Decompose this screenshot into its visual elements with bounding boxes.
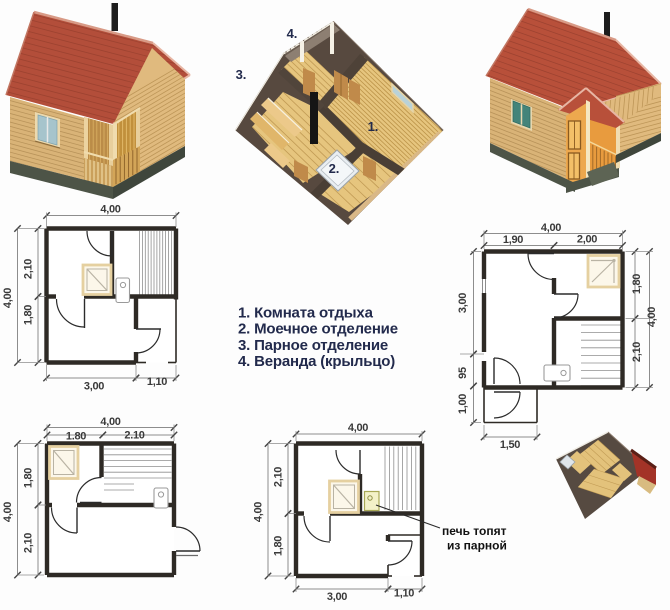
svg-text:2,10: 2,10 <box>23 259 35 279</box>
svg-text:1.80: 1.80 <box>66 431 86 443</box>
svg-text:4,00: 4,00 <box>646 307 658 327</box>
svg-text:2,10: 2,10 <box>273 467 285 487</box>
svg-text:1,10: 1,10 <box>394 588 414 600</box>
svg-text:4,00: 4,00 <box>2 288 14 308</box>
svg-text:95: 95 <box>457 367 469 379</box>
svg-text:1,90: 1,90 <box>503 234 523 246</box>
svg-text:4,00: 4,00 <box>253 502 265 522</box>
svg-text:печь топят: печь топят <box>442 524 507 538</box>
svg-text:2,10: 2,10 <box>631 342 643 362</box>
svg-text:4,00: 4,00 <box>100 204 120 216</box>
svg-text:1.: 1. <box>368 119 379 134</box>
svg-text:4. Веранда (крыльцо): 4. Веранда (крыльцо) <box>238 353 395 370</box>
svg-text:1,10: 1,10 <box>147 376 167 388</box>
svg-text:4,00: 4,00 <box>2 502 14 522</box>
svg-text:1,80: 1,80 <box>23 468 35 488</box>
svg-text:3,00: 3,00 <box>327 591 347 603</box>
svg-text:1,80: 1,80 <box>273 536 285 556</box>
svg-text:4,00: 4,00 <box>100 416 120 428</box>
svg-text:2. Моечное отделение: 2. Моечное отделение <box>238 321 398 338</box>
svg-text:3.: 3. <box>236 67 247 82</box>
svg-text:2.10: 2.10 <box>124 430 144 442</box>
svg-text:1,00: 1,00 <box>457 394 469 414</box>
svg-text:2.: 2. <box>329 161 340 176</box>
svg-text:3,00: 3,00 <box>84 381 104 393</box>
svg-text:4,00: 4,00 <box>541 222 561 234</box>
svg-text:1,80: 1,80 <box>23 305 35 325</box>
svg-text:из парной: из парной <box>447 539 507 553</box>
svg-text:4,00: 4,00 <box>348 422 368 434</box>
svg-text:1. Комната отдыха: 1. Комната отдыха <box>238 305 374 322</box>
svg-text:4.: 4. <box>287 26 298 41</box>
svg-text:3. Парное отделение: 3. Парное отделение <box>238 337 388 354</box>
svg-text:2,00: 2,00 <box>577 234 597 246</box>
svg-text:3,00: 3,00 <box>457 293 469 313</box>
svg-text:2,10: 2,10 <box>23 533 35 553</box>
svg-text:1,80: 1,80 <box>631 274 643 294</box>
svg-text:1,50: 1,50 <box>500 439 520 451</box>
